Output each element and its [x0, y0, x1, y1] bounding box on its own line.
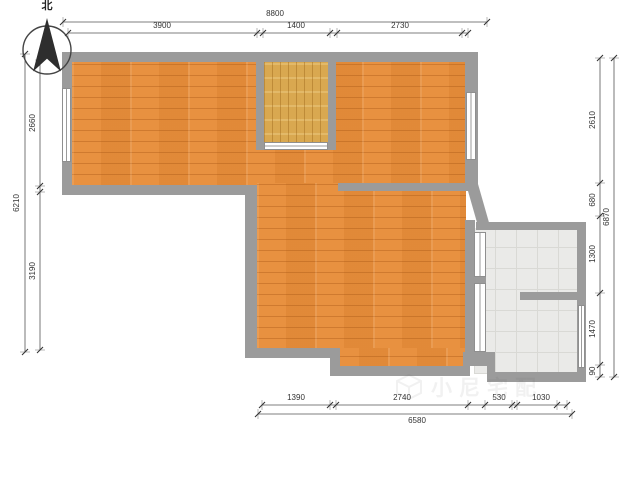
- dim-right-seg-2: 680: [589, 193, 597, 206]
- dim-right-overall: 6870: [603, 208, 611, 226]
- north-compass-icon: [18, 12, 76, 78]
- dim-top-overall: 8800: [266, 10, 284, 18]
- dim-top-seg-1: 3900: [153, 22, 171, 30]
- dim-right-seg-3: 1300: [589, 245, 597, 263]
- dim-left-seg-2: 3190: [29, 262, 37, 280]
- window-upper-east: [466, 92, 476, 160]
- dim-bottom-seg-4: 1030: [532, 394, 550, 402]
- window-balcony-east: [578, 305, 585, 368]
- wall-alcove-east: [328, 52, 336, 150]
- wall-balcony-south: [487, 372, 586, 382]
- window-balcony-west-lower: [474, 283, 486, 352]
- dim-bottom-overall: 6580: [408, 417, 426, 425]
- floor-plan: 8800 3900 1400 2730 6210 2660 3190 6870 …: [0, 0, 640, 480]
- floor-lower-room-step: [330, 348, 466, 368]
- wall-lower-south-left: [245, 348, 338, 358]
- window-west: [62, 88, 71, 162]
- wall-interior-divider: [338, 183, 478, 191]
- wall-lower-south-right: [330, 366, 470, 376]
- floor-north-alcove: [264, 62, 328, 142]
- wall-alcove-west: [256, 52, 264, 150]
- floor-lower-room: [257, 183, 466, 350]
- north-label: 北: [18, 0, 76, 12]
- wall-lower-west: [245, 185, 257, 358]
- dim-top-seg-2: 1400: [287, 22, 305, 30]
- wall-balcony-southwest-post: [487, 352, 495, 380]
- dim-left-seg-1: 2660: [29, 114, 37, 132]
- dim-top-seg-3: 2730: [391, 22, 409, 30]
- wall-upper-south: [62, 185, 257, 195]
- window-balcony-west-upper: [474, 232, 486, 277]
- wall-balcony-north: [476, 222, 586, 230]
- north-compass: 北: [18, 0, 76, 83]
- wall-north: [62, 52, 478, 62]
- dim-bottom-seg-2: 2740: [393, 394, 411, 402]
- dim-left-overall: 6210: [13, 194, 21, 212]
- window-alcove-sill: [264, 142, 328, 150]
- dim-right-seg-5: 90: [589, 367, 597, 376]
- dim-right-seg-4: 1470: [589, 320, 597, 338]
- dim-bottom-seg-3: 530: [492, 394, 505, 402]
- wall-balcony-stub: [520, 292, 577, 300]
- dim-right-seg-1: 2610: [589, 111, 597, 129]
- dim-bottom-seg-1: 1390: [287, 394, 305, 402]
